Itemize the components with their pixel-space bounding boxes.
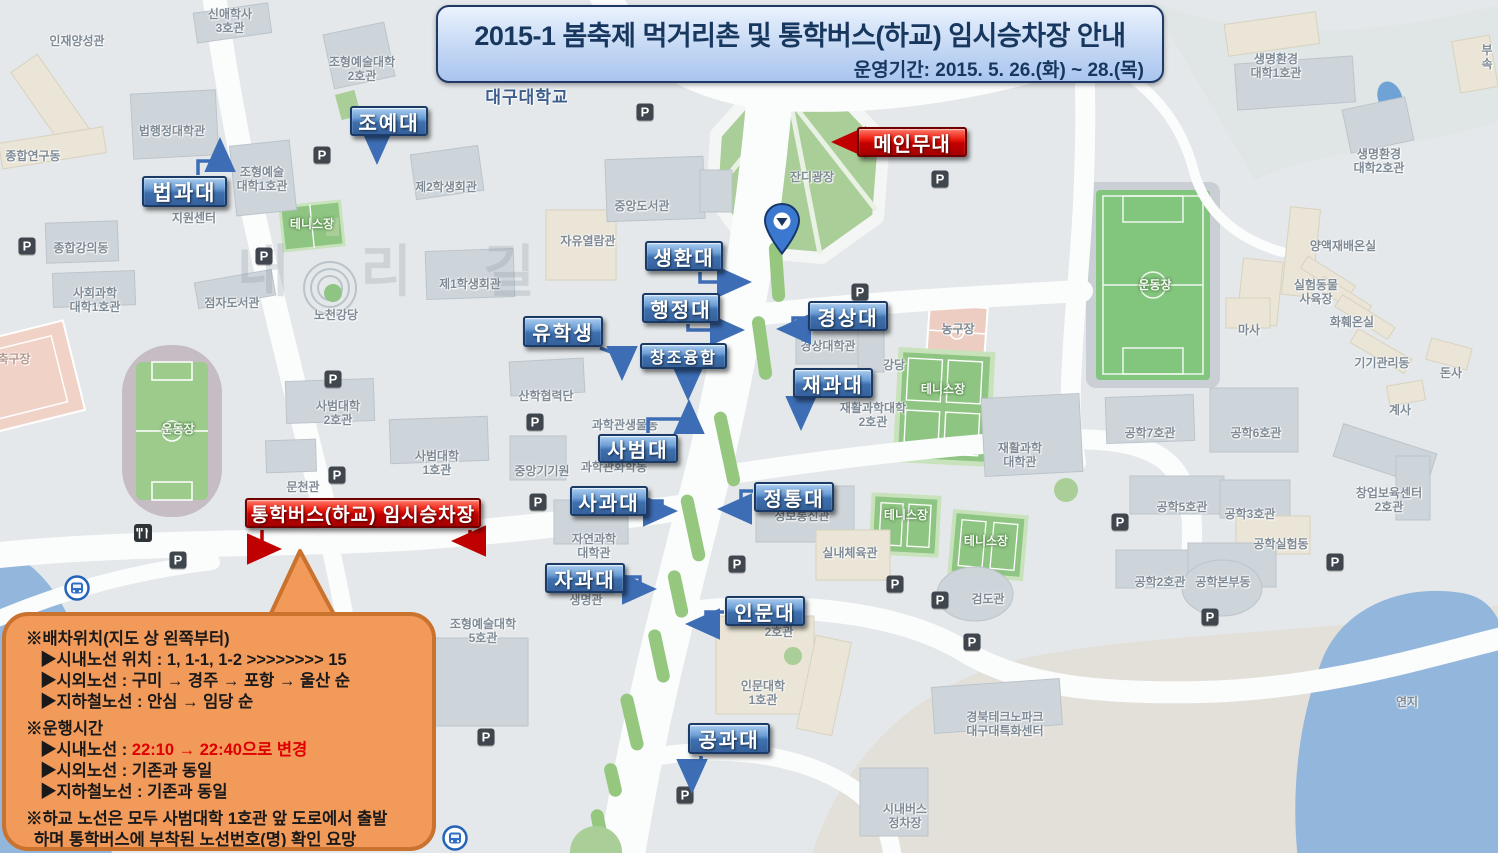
bus-info-text: ※배차위치(지도 상 왼쪽부터)▶시내노선 위치 : 1, 1-1, 1-2 >… [26,629,424,851]
college-callout-label: 창조융합 [640,343,727,369]
bus-info-bubble: ※배차위치(지도 상 왼쪽부터)▶시내노선 위치 : 1, 1-1, 1-2 >… [2,612,436,851]
college-callout-label: 법과대 [142,176,227,207]
bus-info-line: ※배차위치(지도 상 왼쪽부터) [26,629,424,650]
college-callout-label: 사범대 [598,434,678,463]
bus-info-line: ▶지하철노선 : 안심 → 임당 순 [40,692,424,713]
bus-info-line: ▶지하철노선 : 기존과 동일 [40,782,424,803]
highlight-callout-label: 메인무대 [857,127,967,157]
college-callout-label: 조예대 [350,106,428,136]
campus-map-poster: 신애학사 3호관인재양성관종합연구동법행정대학관조형예술대학 2호관대구대학교제… [0,0,1498,853]
poster-title: 2015-1 봄축제 먹거리촌 및 통학버스(하교) 임시승차장 안내 [438,14,1162,53]
college-callout-label: 정통대 [754,482,834,512]
college-callout-label: 자과대 [545,563,625,593]
college-callout-label: 재과대 [793,368,873,398]
college-callout-label: 행정대 [642,293,720,323]
college-callout-label: 유학생 [523,316,603,347]
bus-info-line: 하며 통학버스에 부착된 노선번호(명) 확인 요망 [34,830,424,851]
bus-info-line: ▶시외노선 : 기존과 동일 [40,761,424,782]
college-callout-label: 인문대 [725,596,805,626]
bus-info-line: ※운행시간 [26,719,424,740]
bus-info-line: ▶시내노선 위치 : 1, 1-1, 1-2 >>>>>>>> 15 [40,650,424,671]
college-callout-label: 공과대 [688,723,770,754]
college-callout-label: 사과대 [570,486,648,516]
operation-period: 운영기간: 2015. 5. 26.(화) ~ 28.(목) [438,55,1162,82]
bus-info-line: ※하교 노선은 모두 사범대학 1호관 앞 도로에서 출발 [26,809,424,830]
highlight-callout-label: 통학버스(하교) 임시승차장 [245,498,481,528]
college-callout-label: 경상대 [808,301,888,331]
college-callout-label: 생환대 [645,241,723,271]
bus-info-line: ▶시외노선 : 구미 → 경주 → 포항 → 울산 순 [40,671,424,692]
bus-info-line: ▶시내노선 : 22:10 → 22:40으로 변경 [40,740,424,761]
title-banner: 2015-1 봄축제 먹거리촌 및 통학버스(하교) 임시승차장 안내 운영기간… [436,5,1164,83]
